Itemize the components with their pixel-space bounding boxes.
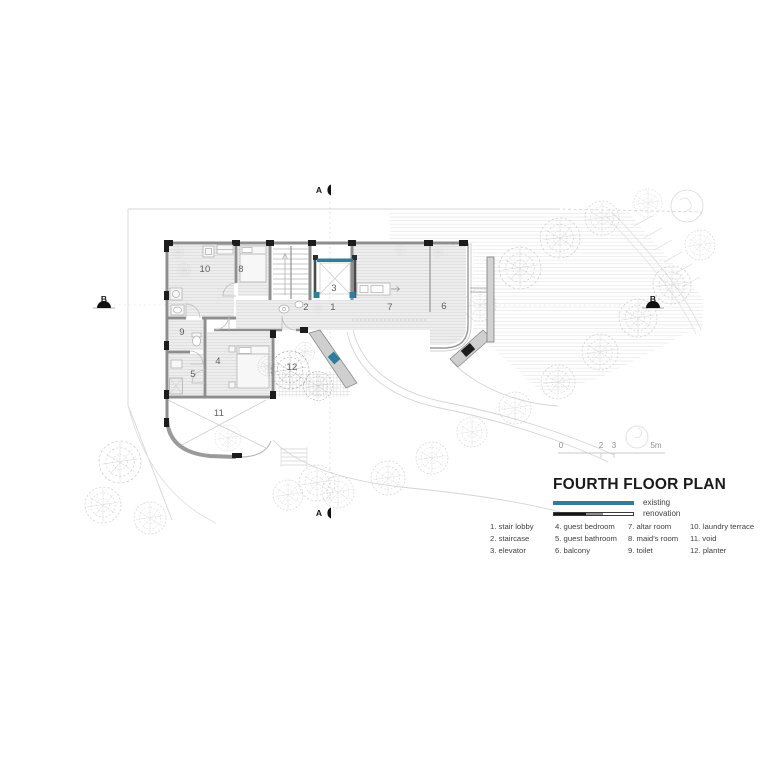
tree [295, 342, 314, 361]
tree [85, 487, 121, 523]
room-label-10: 10 [200, 264, 211, 275]
floor-fills [169, 245, 466, 397]
room-label-4: 4 [215, 356, 220, 367]
tree [273, 480, 303, 510]
section-arrow-icon [327, 508, 331, 519]
room-key-column: 1. stair lobby 2. staircase 3. elevator [490, 521, 555, 556]
existing-line-swatch [553, 501, 634, 506]
tree [371, 461, 405, 495]
floor-plan-drawing: 1 2 3 4 5 6 7 8 9 10 11 12 A A B B 0 [0, 0, 768, 768]
tree [322, 476, 354, 508]
section-marker-a-top: A [316, 185, 331, 196]
svg-text:A: A [316, 508, 322, 518]
room-label-5: 5 [190, 369, 195, 380]
room-key-item: 4. guest bedroom [555, 521, 628, 533]
renovation-line-swatch [553, 512, 634, 517]
svg-text:2: 2 [599, 441, 604, 450]
renovation-accent [350, 292, 356, 298]
room-label-3: 3 [331, 283, 336, 294]
section-arrow-icon [97, 301, 111, 308]
room-label-9: 9 [179, 327, 184, 338]
room-label-2: 2 [303, 302, 308, 313]
room-key-item: 8. maid's room [628, 533, 690, 545]
legend-renovation: renovation [553, 511, 763, 517]
section-arrow-icon [327, 185, 331, 196]
legend-renovation-label: renovation [643, 511, 680, 517]
room-label-7: 7 [387, 302, 392, 313]
room-key-item: 10. laundry terrace [690, 521, 768, 533]
section-marker-b-left: B [93, 294, 115, 308]
room-key-item: 9. toilet [628, 545, 690, 557]
tree [99, 441, 141, 483]
staircase [273, 246, 309, 299]
svg-text:0: 0 [559, 441, 564, 450]
stair-lobby-floor [236, 300, 345, 330]
planter-wall [487, 257, 494, 342]
legend-existing-label: existing [643, 500, 670, 506]
room-label-6: 6 [441, 301, 446, 312]
svg-text:3: 3 [612, 441, 617, 450]
room-key-item: 1. stair lobby [490, 521, 555, 533]
page-title: FOURTH FLOOR PLAN [553, 476, 763, 494]
room-key-item: 12. planter [690, 545, 768, 557]
tree [499, 392, 531, 424]
room-label-1: 1 [330, 302, 335, 313]
svg-text:5m: 5m [650, 441, 661, 450]
room-key-column: 10. laundry terrace 11. void 12. planter [690, 521, 768, 556]
tree [215, 425, 241, 451]
tree [416, 442, 448, 474]
room-key-item: 3. elevator [490, 545, 555, 557]
renovation-accent [314, 292, 320, 298]
room-label-11: 11 [214, 408, 224, 419]
tree [457, 417, 487, 447]
balcony-floor [430, 245, 466, 345]
room-key-item: 2. staircase [490, 533, 555, 545]
tree [685, 230, 715, 260]
title-block: FOURTH FLOOR PLAN existing renovation [553, 476, 763, 522]
room-key-column: 7. altar room 8. maid's room 9. toilet [628, 521, 690, 556]
tree [671, 190, 703, 222]
room-label-8: 8 [238, 264, 243, 275]
room-key-item: 11. void [690, 533, 768, 545]
room-key-item: 6. balcony [555, 545, 628, 557]
svg-text:A: A [316, 185, 322, 195]
plan-sheet: 1 2 3 4 5 6 7 8 9 10 11 12 A A B B 0 [0, 0, 768, 768]
room-label-12: 12 [287, 362, 298, 373]
room-key-column: 4. guest bedroom 5. guest bathroom 6. ba… [555, 521, 628, 556]
renovation-accent [317, 259, 353, 263]
legend-existing: existing [553, 500, 763, 506]
room-key-item: 5. guest bathroom [555, 533, 628, 545]
section-marker-a-bottom: A [316, 508, 331, 519]
room-key-item: 7. altar room [628, 521, 690, 533]
north-indicator [626, 426, 648, 448]
scale-bar: 0 2 3 5m [558, 441, 665, 458]
tree [634, 189, 662, 217]
room-key-list: 1. stair lobby 2. staircase 3. elevator … [490, 521, 768, 556]
tree [134, 502, 166, 534]
